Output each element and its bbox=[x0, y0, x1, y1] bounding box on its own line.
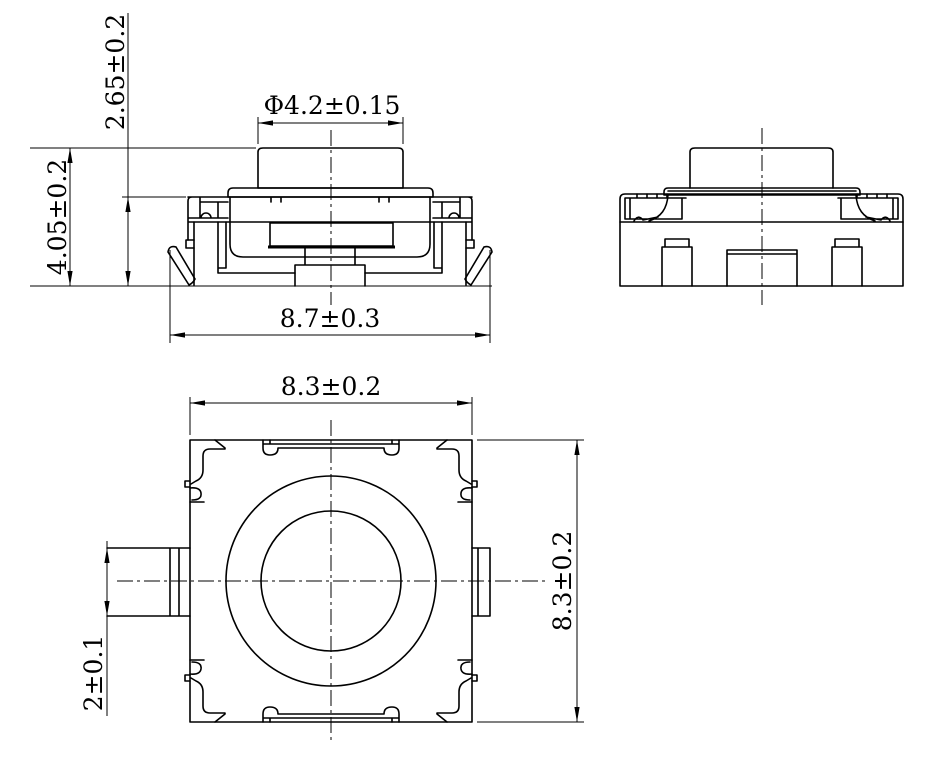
front-view: 2.65±0.2 4.05±0.2 Φ4.2±0.15 8.7±0.3 bbox=[30, 13, 492, 343]
dim-label-body-width: 8.3±0.2 bbox=[281, 372, 381, 401]
gullwing-lead-right bbox=[465, 247, 492, 285]
dim-label-actuator-diameter: Φ4.2±0.15 bbox=[264, 91, 401, 120]
base-outer-edges bbox=[194, 222, 466, 285]
dim-terminal-width: 2±0.1 bbox=[79, 541, 110, 716]
corner-detail-top-right bbox=[437, 440, 477, 502]
dim-label-lead-span: 8.7±0.3 bbox=[280, 304, 380, 333]
side-view bbox=[620, 128, 903, 305]
corner-detail-bottom-left bbox=[185, 660, 225, 722]
dim-label-total-height: 4.05±0.2 bbox=[43, 159, 72, 275]
terminal-tab-left bbox=[107, 548, 190, 616]
engineering-drawing: 2.65±0.2 4.05±0.2 Φ4.2±0.15 8.7±0.3 bbox=[0, 0, 950, 765]
dim-body-height: 2.65±0.2 bbox=[101, 13, 186, 286]
dim-total-height: 4.05±0.2 bbox=[30, 148, 256, 286]
drawing-sheet: 2.65±0.2 4.05±0.2 Φ4.2±0.15 8.7±0.3 bbox=[0, 0, 950, 765]
dim-label-body-depth: 8.3±0.2 bbox=[548, 531, 577, 631]
dim-label-terminal-width: 2±0.1 bbox=[79, 635, 108, 712]
pedestal-and-base-center bbox=[295, 247, 365, 286]
front-geometry bbox=[30, 130, 492, 305]
dim-label-body-height: 2.65±0.2 bbox=[101, 14, 130, 130]
corner-detail-bottom-right bbox=[437, 660, 477, 722]
corner-detail-top-left bbox=[185, 440, 225, 502]
gullwing-lead-left bbox=[168, 247, 195, 285]
top-view: 8.3±0.2 8.3±0.2 2±0.1 bbox=[79, 372, 584, 742]
terminal-tab-right bbox=[472, 548, 490, 616]
dim-extension-line bbox=[122, 13, 186, 286]
